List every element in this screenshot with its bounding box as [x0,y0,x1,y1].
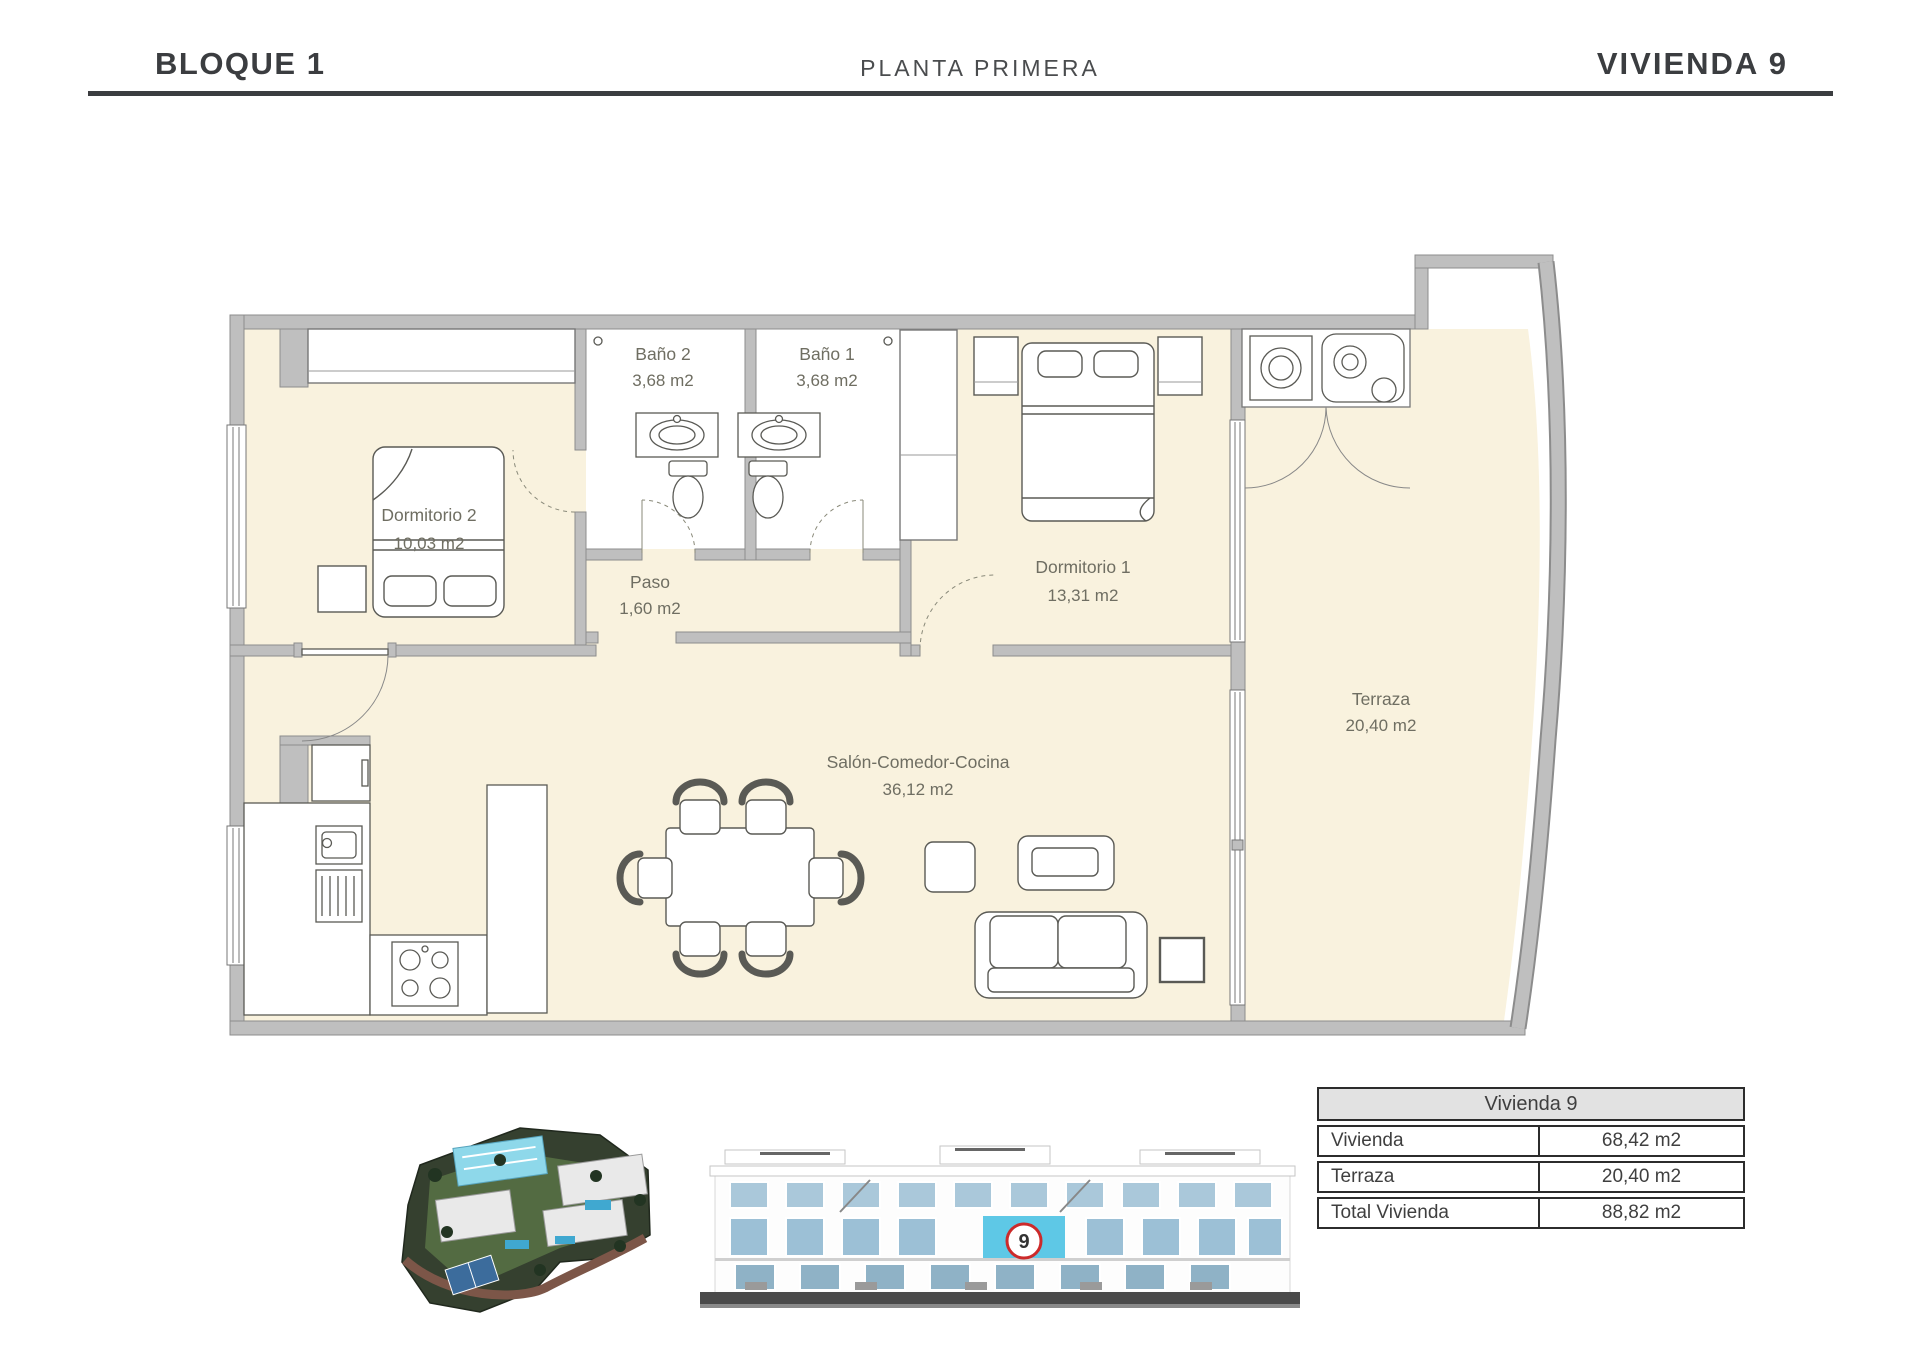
roof-pergolas [725,1146,1260,1164]
svg-text:10,03 m2: 10,03 m2 [394,534,465,553]
row-label: Terraza [1319,1163,1540,1191]
wardrobe [900,330,957,540]
ceiling-light-icon [884,337,892,345]
svg-text:Paso: Paso [630,572,670,592]
summary-table-title: Vivienda 9 [1317,1087,1745,1121]
boiler-icon [1322,334,1404,402]
stove-icon [392,942,458,1006]
side-table [1160,938,1204,982]
svg-text:9: 9 [1018,1231,1029,1253]
nightstand-left [974,337,1018,395]
unit-number-marker: 9 [1007,1224,1041,1258]
summary-table: Vivienda 9 Vivienda 68,42 m2 Terraza 20,… [1317,1087,1745,1229]
svg-text:1,60 m2: 1,60 m2 [619,599,680,618]
kitchen-island [487,785,547,1013]
svg-text:Terraza: Terraza [1352,689,1411,709]
aerial-site-render [402,1128,650,1312]
table-row: Terraza 20,40 m2 [1317,1161,1745,1193]
nightstand-right [1158,337,1202,395]
row-value: 20,40 m2 [1540,1166,1743,1188]
sliding-door-terrace [1230,690,1245,1005]
svg-text:13,31 m2: 13,31 m2 [1048,586,1119,605]
svg-text:3,68 m2: 3,68 m2 [632,371,693,390]
toilet-tank [669,461,707,476]
svg-text:Dormitorio 2: Dormitorio 2 [381,505,476,525]
building-elevation-render: 9 [700,1146,1300,1308]
svg-text:Dormitorio 1: Dormitorio 1 [1035,557,1130,577]
svg-text:Salón-Comedor-Cocina: Salón-Comedor-Cocina [827,752,1010,772]
faucet [674,416,681,423]
svg-text:20,40 m2: 20,40 m2 [1346,716,1417,735]
window-kitchen [227,826,246,965]
window-bedroom2 [227,425,246,608]
svg-text:36,12 m2: 36,12 m2 [883,780,954,799]
fridge-handle [362,760,368,786]
row-value: 88,82 m2 [1540,1202,1743,1224]
floor-plan: Dormitorio 2 10,03 m2 Baño 2 3,68 m2 Bañ… [227,255,1558,1035]
door-leaf [302,649,388,655]
faucet [776,416,783,423]
double-bed [1022,343,1154,521]
nightstand [318,566,366,612]
toilet-bowl [753,476,783,518]
toilet-tank [749,461,787,476]
window-bedroom1-terrace [1230,420,1245,642]
kitchen-sink [316,826,362,864]
armchair [1018,836,1114,890]
toilet-bowl [673,476,703,518]
sofa [975,912,1147,998]
row-value: 68,42 m2 [1540,1130,1743,1152]
row-label: Vivienda [1319,1127,1540,1155]
row-label: Total Vivienda [1319,1199,1540,1227]
brochure-page: BLOQUE 1 PLANTA PRIMERA VIVIENDA 9 [0,0,1920,1358]
table-row: Vivienda 68,42 m2 [1317,1125,1745,1157]
ground-band [700,1292,1300,1304]
dining-table [666,828,814,926]
ceiling-light-icon [594,337,602,345]
coffee-table [925,842,975,892]
washing-machine-icon [1250,336,1312,400]
svg-text:Baño 1: Baño 1 [799,344,854,364]
drawer-unit [316,870,362,922]
fridge [312,745,370,801]
wardrobe-strip [308,329,575,383]
svg-text:Baño 2: Baño 2 [635,344,690,364]
svg-text:3,68 m2: 3,68 m2 [796,371,857,390]
faucet [323,839,332,848]
single-bed [373,447,504,617]
table-row: Total Vivienda 88,82 m2 [1317,1197,1745,1229]
